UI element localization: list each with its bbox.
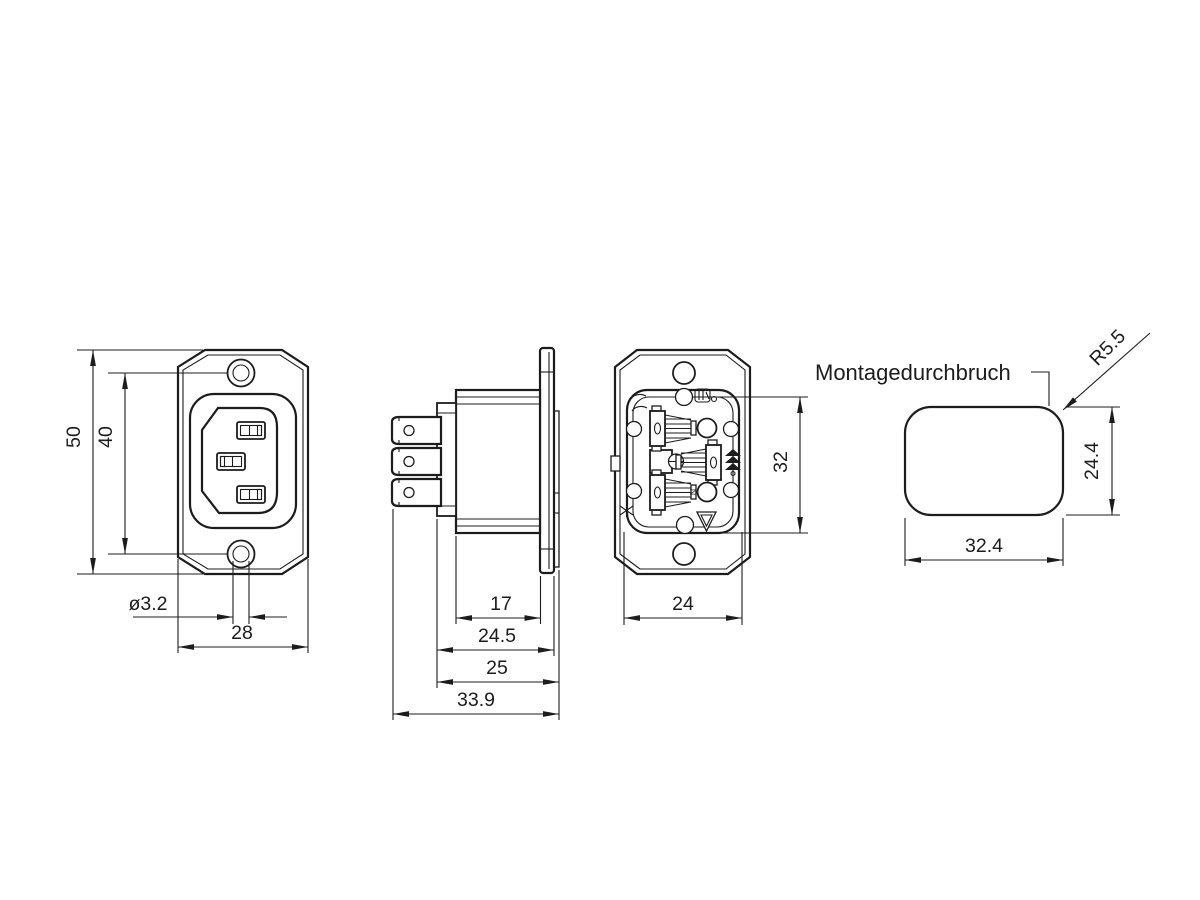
- dim-depth-24-5: 24.5: [437, 625, 554, 650]
- rear-rivet-circle-3: [724, 422, 739, 437]
- cutout-label: Montagedurchbruch: [815, 360, 1011, 385]
- rear-boss-bottom: [677, 517, 694, 534]
- rear-rivet-circle-4: [724, 483, 739, 498]
- side-dimensions: 17 24.5 25 33.9: [393, 509, 559, 720]
- dim-overall-depth-33-9: 33.9: [393, 689, 559, 714]
- side-flange: [540, 348, 554, 573]
- dim-label-50: 50: [63, 426, 85, 448]
- mounting-cutout-view: Montagedurchbruch R5.5 24.4 32.4: [815, 325, 1150, 566]
- dim-label-33-9: 33.9: [457, 689, 495, 711]
- dim-cutout-width-32-4: 32.4: [905, 518, 1063, 566]
- dim-label-17: 17: [490, 593, 512, 615]
- rear-view: N 32: [611, 350, 808, 625]
- rear-side-notch: [611, 456, 620, 471]
- dim-cutout-height-24-4: 24.4: [1066, 407, 1120, 515]
- rear-mounting-hole-top: [673, 362, 695, 384]
- dim-label-24: 24: [672, 593, 694, 615]
- dim-label-40: 40: [95, 426, 117, 448]
- rear-mounting-hole-bottom: [673, 543, 695, 565]
- dim-body-depth-17: 17: [456, 593, 541, 618]
- dim-label-24-4: 24.4: [1081, 442, 1103, 480]
- side-body: [456, 390, 540, 533]
- rear-boss-top: [676, 389, 693, 406]
- side-terminal-middle: [392, 448, 441, 475]
- dim-depth-25: 25: [437, 657, 559, 682]
- dim-label-28: 28: [231, 622, 253, 644]
- rear-contact-live: [698, 419, 717, 438]
- side-terminal-bottom: [392, 479, 441, 506]
- side-terminal-top: [392, 417, 441, 444]
- iec-outlet-drawing: 50 40 ø3.2 28: [0, 0, 1200, 900]
- rear-rivet-circle-1: [627, 422, 642, 437]
- dim-label-25: 25: [486, 657, 508, 679]
- front-view: 50 40 ø3.2 28: [63, 350, 308, 653]
- technical-drawing-canvas: 50 40 ø3.2 28: [0, 0, 1200, 900]
- dim-label-r5-5: R5.5: [1085, 325, 1130, 370]
- cutout-label-leader: [1031, 372, 1049, 406]
- side-view: 17 24.5 25 33.9: [392, 348, 559, 720]
- rear-contact-neutral: [698, 483, 717, 502]
- cutout-outline: [905, 407, 1063, 515]
- dim-corner-radius-r5-5: R5.5: [1063, 325, 1150, 410]
- neutral-label: N: [688, 489, 698, 496]
- rear-rivet-circle-2: [627, 484, 642, 499]
- dim-label-32-4: 32.4: [965, 535, 1003, 557]
- dim-label-o3-2: ø3.2: [128, 593, 167, 615]
- front-mounting-hole-top-outer: [228, 360, 255, 387]
- dim-label-24-5: 24.5: [478, 625, 516, 647]
- dim-label-32: 32: [770, 451, 792, 473]
- front-mounting-hole-bottom-outer: [228, 541, 255, 568]
